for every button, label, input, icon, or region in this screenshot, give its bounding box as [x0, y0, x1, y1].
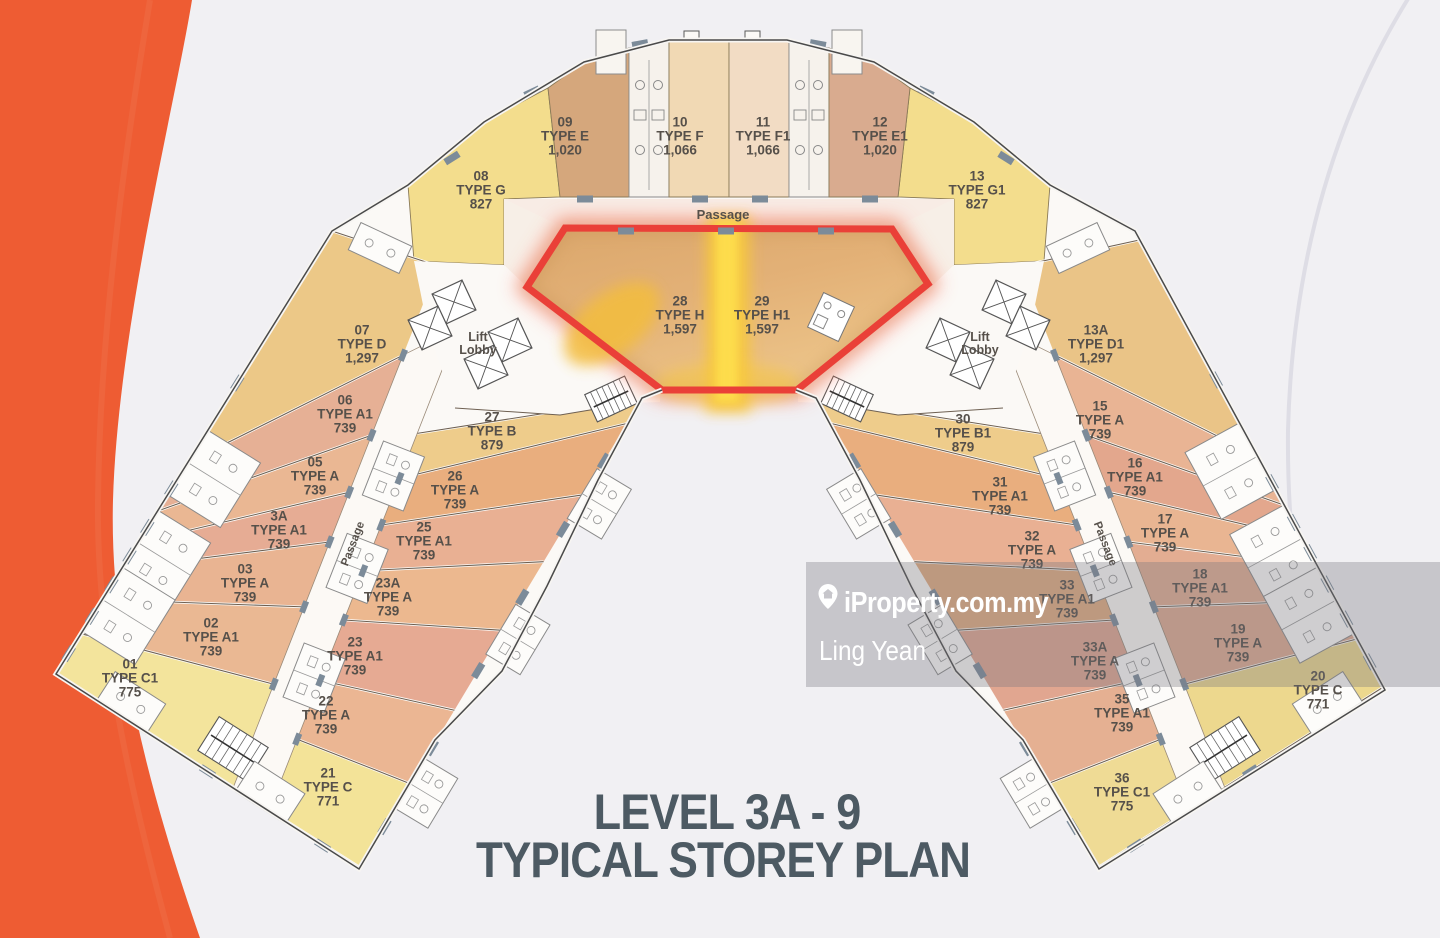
svg-text:35: 35: [1114, 692, 1130, 707]
svg-text:827: 827: [966, 197, 989, 212]
svg-text:03: 03: [237, 562, 253, 577]
svg-text:TYPE G1: TYPE G1: [948, 183, 1006, 198]
svg-text:28: 28: [672, 294, 688, 309]
svg-text:TYPE A: TYPE A: [1141, 526, 1190, 541]
svg-text:1,297: 1,297: [1079, 351, 1113, 366]
svg-text:1,597: 1,597: [663, 322, 697, 337]
svg-text:1,297: 1,297: [345, 351, 379, 366]
svg-text:1,597: 1,597: [745, 322, 779, 337]
svg-text:16: 16: [1127, 456, 1143, 471]
svg-text:26: 26: [447, 469, 463, 484]
svg-text:Lobby: Lobby: [961, 343, 999, 357]
svg-text:879: 879: [481, 438, 504, 453]
svg-text:739: 739: [444, 497, 467, 512]
svg-text:21: 21: [320, 766, 336, 781]
svg-text:TYPE F1: TYPE F1: [736, 129, 791, 144]
svg-text:TYPE A: TYPE A: [221, 576, 270, 591]
svg-text:iProperty.com.my: iProperty.com.my: [844, 585, 1049, 618]
svg-text:739: 739: [377, 604, 400, 619]
svg-text:775: 775: [119, 685, 142, 700]
svg-text:739: 739: [413, 548, 436, 563]
svg-text:TYPE C1: TYPE C1: [1094, 785, 1151, 800]
svg-text:05: 05: [307, 455, 323, 470]
svg-text:13A: 13A: [1084, 323, 1109, 338]
svg-text:07: 07: [354, 323, 369, 338]
svg-text:739: 739: [334, 421, 357, 436]
svg-text:23A: 23A: [376, 576, 401, 591]
svg-text:739: 739: [1154, 540, 1177, 555]
svg-text:09: 09: [557, 115, 572, 130]
svg-text:23: 23: [347, 635, 363, 650]
svg-text:827: 827: [470, 197, 493, 212]
svg-text:771: 771: [1307, 697, 1330, 712]
svg-text:1,066: 1,066: [663, 143, 697, 158]
svg-text:TYPE F: TYPE F: [656, 129, 703, 144]
svg-text:771: 771: [317, 794, 340, 809]
svg-text:TYPE A1: TYPE A1: [972, 489, 1028, 504]
svg-text:739: 739: [315, 722, 338, 737]
svg-text:775: 775: [1111, 799, 1134, 814]
svg-text:Lobby: Lobby: [459, 343, 497, 357]
svg-text:739: 739: [304, 483, 327, 498]
svg-text:TYPE A: TYPE A: [431, 483, 480, 498]
svg-text:31: 31: [992, 475, 1008, 490]
svg-text:30: 30: [955, 412, 970, 427]
svg-text:TYPE H1: TYPE H1: [734, 308, 791, 323]
svg-text:TYPE E: TYPE E: [541, 129, 589, 144]
svg-text:739: 739: [1089, 427, 1112, 442]
svg-text:22: 22: [318, 694, 333, 709]
svg-text:3A: 3A: [270, 509, 288, 524]
svg-text:739: 739: [200, 644, 223, 659]
svg-text:10: 10: [672, 115, 687, 130]
svg-text:739: 739: [234, 590, 257, 605]
svg-text:Lift: Lift: [468, 330, 488, 344]
svg-text:17: 17: [1157, 512, 1172, 527]
svg-text:TYPE G: TYPE G: [456, 183, 506, 198]
svg-text:TYPE A1: TYPE A1: [317, 407, 373, 422]
svg-text:739: 739: [268, 537, 291, 552]
svg-text:11: 11: [756, 115, 771, 130]
svg-text:739: 739: [989, 503, 1012, 518]
svg-text:Lift: Lift: [970, 330, 990, 344]
svg-text:TYPE A1: TYPE A1: [1094, 706, 1150, 721]
svg-text:TYPE A: TYPE A: [291, 469, 340, 484]
svg-text:TYPE A: TYPE A: [302, 708, 351, 723]
svg-text:1,020: 1,020: [863, 143, 897, 158]
svg-text:TYPE B1: TYPE B1: [935, 426, 992, 441]
svg-text:TYPE D: TYPE D: [338, 337, 387, 352]
svg-text:12: 12: [872, 115, 887, 130]
svg-text:TYPE E1: TYPE E1: [852, 129, 908, 144]
svg-text:02: 02: [203, 616, 218, 631]
svg-text:Passage: Passage: [697, 207, 750, 222]
svg-text:01: 01: [122, 657, 138, 672]
svg-text:TYPE A1: TYPE A1: [1107, 470, 1163, 485]
svg-text:TYPE A1: TYPE A1: [183, 630, 239, 645]
svg-text:08: 08: [473, 169, 489, 184]
svg-text:1,020: 1,020: [548, 143, 582, 158]
svg-text:TYPE A: TYPE A: [1076, 413, 1125, 428]
svg-text:TYPE D1: TYPE D1: [1068, 337, 1125, 352]
svg-text:TYPE H: TYPE H: [656, 308, 705, 323]
svg-text:TYPE C1: TYPE C1: [102, 671, 159, 686]
svg-text:29: 29: [754, 294, 769, 309]
svg-text:TYPE B: TYPE B: [468, 424, 517, 439]
svg-text:06: 06: [337, 393, 353, 408]
svg-text:879: 879: [952, 440, 975, 455]
svg-text:TYPE A: TYPE A: [364, 590, 413, 605]
svg-text:Ling Yean: Ling Yean: [819, 634, 926, 666]
svg-text:TYPE A: TYPE A: [1008, 543, 1057, 558]
svg-text:1,066: 1,066: [746, 143, 780, 158]
svg-text:TYPE A1: TYPE A1: [396, 534, 452, 549]
svg-text:13: 13: [969, 169, 985, 184]
svg-text:15: 15: [1092, 399, 1108, 414]
svg-text:TYPE C: TYPE C: [304, 780, 353, 795]
svg-text:TYPICAL STOREY PLAN: TYPICAL STOREY PLAN: [476, 831, 970, 887]
svg-text:739: 739: [1124, 484, 1147, 499]
svg-text:32: 32: [1024, 529, 1039, 544]
svg-text:TYPE A1: TYPE A1: [327, 649, 383, 664]
svg-text:36: 36: [1114, 771, 1130, 786]
svg-text:25: 25: [416, 520, 432, 535]
svg-text:27: 27: [484, 410, 499, 425]
svg-text:739: 739: [1111, 720, 1134, 735]
svg-text:739: 739: [344, 663, 367, 678]
svg-text:TYPE A1: TYPE A1: [251, 523, 307, 538]
